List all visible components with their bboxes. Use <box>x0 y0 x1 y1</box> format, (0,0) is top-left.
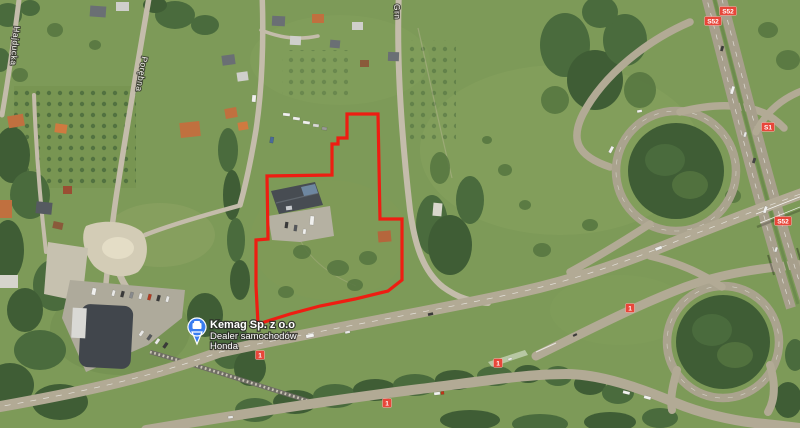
shield-label: 1 <box>496 361 500 368</box>
route-shield-1-b: 1 <box>383 399 392 408</box>
route-shield-s52-a: S52 <box>720 7 737 16</box>
route-shield-s1: S1 <box>762 123 775 132</box>
route-shield-1-a: 1 <box>256 351 265 360</box>
shield-label: S1 <box>764 125 772 132</box>
shield-label: 1 <box>628 306 632 313</box>
shield-label: S52 <box>707 19 719 26</box>
route-shield-1-c: 1 <box>494 359 503 368</box>
street-label-grn: Grn <box>392 4 403 20</box>
shield-label: 1 <box>385 401 389 408</box>
route-shield-s52-c: S52 <box>775 217 792 226</box>
route-shield-s52-b: S52 <box>705 17 722 26</box>
poi-title[interactable]: Kemag Sp. z o.o <box>210 319 295 331</box>
map-tiles: S52 S52 S1 S52 1 1 1 1 <box>0 0 800 428</box>
satellite-map-canvas[interactable]: S52 S52 S1 S52 1 1 1 1 <box>0 0 800 428</box>
shield-label: S52 <box>777 219 789 226</box>
poi-brand[interactable]: Honda <box>210 341 239 352</box>
route-shield-1-d: 1 <box>626 304 635 313</box>
shield-label: 1 <box>258 353 262 360</box>
shield-label: S52 <box>722 9 734 16</box>
